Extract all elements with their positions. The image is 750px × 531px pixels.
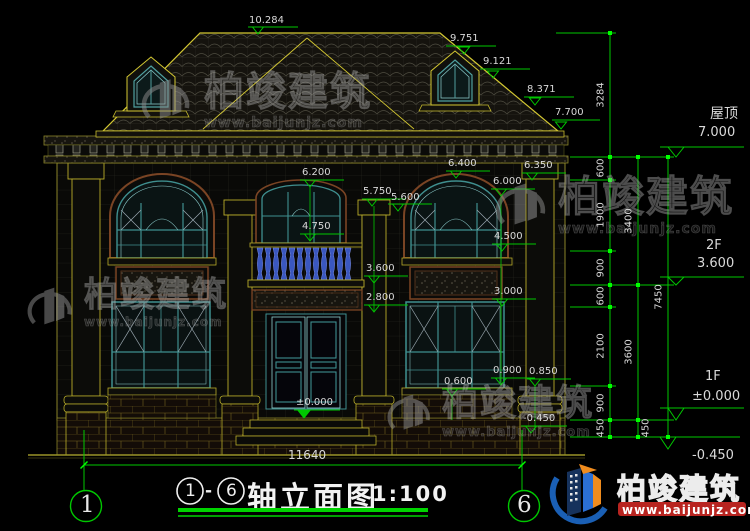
elev-7700: 7.700 <box>555 107 584 118</box>
level-2f-label: 2F <box>706 240 722 251</box>
entry-door <box>266 314 346 409</box>
elev-9121: 9.121 <box>483 56 512 67</box>
title-separator: - <box>205 481 212 501</box>
elev-6350: 6.350 <box>524 160 553 171</box>
title-underline-thick <box>178 508 428 512</box>
brand-logo: 柏竣建筑 www.baijunjz.com <box>543 458 750 530</box>
window-1f-left <box>108 302 216 418</box>
chain-2100: 2100 <box>596 333 607 358</box>
chain-7450: 7450 <box>654 284 665 309</box>
chain-900b: 900 <box>596 393 607 412</box>
cornice <box>44 136 568 163</box>
title-underline-thin <box>178 515 428 517</box>
elev-5600: 5.600 <box>391 192 420 203</box>
elev-9751: 9.751 <box>450 33 479 44</box>
axis-bubble-6: 6 <box>517 492 532 518</box>
beam-band <box>252 290 362 310</box>
level-1f-value: ±0.000 <box>692 391 740 402</box>
chain-450b: 450 <box>641 418 652 437</box>
elev-peak: 10.284 <box>249 15 284 26</box>
brand-logo-icon <box>543 458 613 528</box>
dimension-ticks <box>608 31 670 439</box>
level-1f-label: 1F <box>705 371 721 382</box>
balcony <box>248 243 364 287</box>
elev-0600: 0.600 <box>444 376 473 387</box>
window-1f-right <box>402 302 512 418</box>
level-2f-value: 3.600 <box>697 258 734 269</box>
elev-4500: 4.500 <box>494 231 523 242</box>
level-roof-value: 7.000 <box>698 127 735 138</box>
overall-width-dim: 11640 <box>288 450 326 461</box>
chain-600a: 600 <box>596 158 607 177</box>
entry-steps <box>236 420 376 445</box>
elev-6200: 6.200 <box>302 167 331 178</box>
drawing-scale: 1:100 <box>372 482 449 506</box>
elev-0900: 0.900 <box>493 365 522 376</box>
elev-neg450: -0.450 <box>523 413 555 424</box>
elev-6000: 6.000 <box>493 176 522 187</box>
elev-2800: 2.800 <box>366 292 395 303</box>
title-bubble-end: 6 <box>226 481 237 501</box>
elev-0850: 0.850 <box>529 366 558 377</box>
brand-url: www.baijunjz.com <box>622 503 750 517</box>
elev-6400: 6.400 <box>448 158 477 169</box>
elev-3600: 3.600 <box>366 263 395 274</box>
chain-450a: 450 <box>596 418 607 437</box>
window-2f-left <box>108 174 216 265</box>
level-roof-label: 屋顶 <box>710 109 738 120</box>
axis-bubble-1: 1 <box>80 492 95 518</box>
title-bubble-start: 1 <box>185 481 196 501</box>
elev-8371: 8.371 <box>527 84 556 95</box>
chain-3600: 3600 <box>624 339 635 364</box>
chain-3284: 3284 <box>596 82 607 107</box>
chain-3400: 3400 <box>624 208 635 233</box>
spandrel-panel-left <box>116 267 208 299</box>
elev-3000: 3.000 <box>494 286 523 297</box>
chain-1900: 1900 <box>596 202 607 227</box>
chain-600b: 600 <box>596 286 607 305</box>
window-2f-right <box>402 174 512 265</box>
elev-4750: 4.750 <box>302 221 331 232</box>
elev-door-zero: ±0.000 <box>296 397 333 408</box>
elev-5750: 5.750 <box>363 186 392 197</box>
cad-elevation-sheet: 柏竣建筑 www.baijunjz.com 柏竣建筑 www.baijunjz.… <box>0 0 750 531</box>
chain-900a: 900 <box>596 258 607 277</box>
spandrel-panel-right <box>410 267 502 299</box>
